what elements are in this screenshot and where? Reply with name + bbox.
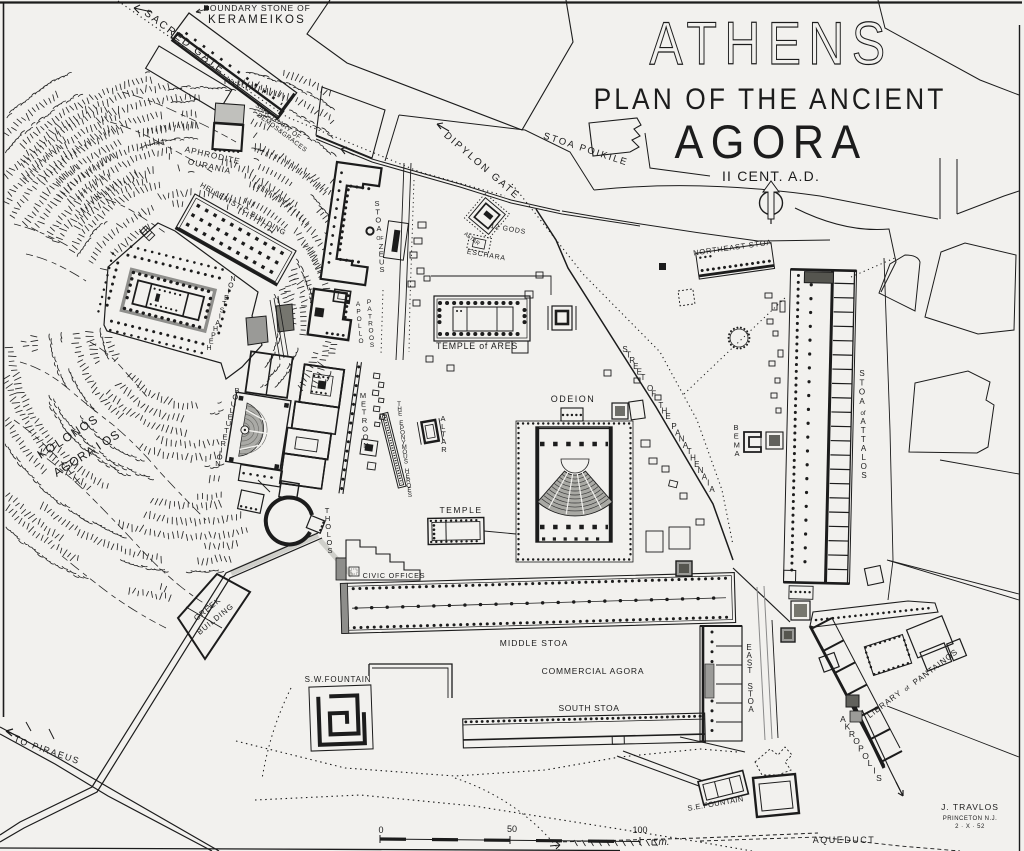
svg-text:2 · X · 52: 2 · X · 52 [955,824,985,830]
svg-text:0: 0 [378,825,383,835]
svg-text:T: T [222,301,227,308]
svg-text:100: 100 [632,825,647,835]
svg-text:II CENT. A.D.: II CENT. A.D. [722,168,820,184]
svg-text:P: P [367,299,371,306]
svg-text:T: T [747,666,752,675]
svg-text:T: T [860,378,865,387]
svg-text:I: I [228,289,230,296]
svg-text:L: L [861,453,866,462]
svg-text:E: E [398,411,402,418]
svg-text:50: 50 [507,824,517,834]
svg-text:I: I [219,314,221,321]
svg-text:E: E [209,339,214,346]
svg-text:S: S [861,471,866,480]
svg-text:A: A [860,417,866,426]
svg-text:O: O [368,328,373,335]
svg-text:PLAN OF THE ANCIENT: PLAN OF THE ANCIENT [594,81,947,115]
svg-text:A: A [734,449,739,458]
svg-text:S: S [859,369,864,378]
svg-text:J. TRAVLOS: J. TRAVLOS [941,802,999,812]
svg-text:L: L [358,323,362,330]
svg-text:E: E [665,412,670,421]
svg-text:S: S [876,773,882,783]
svg-text:T: T [640,373,645,382]
svg-text:S.W.FOUNTAIN: S.W.FOUNTAIN [305,675,372,684]
svg-text:A: A [709,485,715,494]
svg-text:S: S [220,307,225,314]
svg-text:S: S [404,459,408,466]
svg-text:A: A [859,397,865,406]
svg-text:SOUTH STOA: SOUTH STOA [558,703,619,713]
svg-text:A: A [861,444,867,453]
svg-text:N: N [215,459,220,468]
svg-text:B: B [733,423,738,432]
svg-text:N: N [230,276,235,283]
svg-text:A: A [356,301,361,308]
svg-text:TEMPLE: TEMPLE [439,505,482,515]
svg-text:N: N [363,441,368,450]
svg-text:PRINCETON N.J.: PRINCETON N.J. [943,816,998,822]
svg-text:A: A [376,224,381,233]
svg-text:F: F [651,390,656,399]
svg-text:TEMPLE of ARES: TEMPLE of ARES [436,341,518,351]
svg-text:L: L [868,758,873,768]
svg-text:m.: m. [658,837,669,848]
svg-text:KERAMEIKOS: KERAMEIKOS [208,14,306,26]
svg-text:AGORA: AGORA [675,115,868,168]
svg-text:R: R [441,445,447,454]
svg-text:O: O [228,282,234,289]
svg-text:L: L [359,331,363,338]
svg-text:COMMERCIAL AGORA: COMMERCIAL AGORA [542,666,645,676]
svg-text:P: P [211,333,216,340]
svg-text:O: O [369,335,374,342]
svg-text:ODEION: ODEION [551,394,596,404]
svg-text:H: H [213,326,218,333]
svg-text:A: A [748,705,754,714]
svg-text:MIDDLE STOA: MIDDLE STOA [500,638,568,648]
svg-text:S: S [379,265,384,274]
svg-text:T: T [861,426,866,435]
svg-text:CIVIC OFFICES: CIVIC OFFICES [363,571,426,580]
svg-text:R: R [368,321,373,328]
svg-text:BOUNDARY STONE OF: BOUNDARY STONE OF [203,3,310,13]
svg-text:ATHENS: ATHENS [649,10,892,77]
svg-text:T: T [861,435,866,444]
svg-text:O: O [859,388,865,397]
svg-text:S: S [370,342,375,349]
svg-text:O: O [358,338,363,345]
svg-text:P: P [356,308,360,315]
svg-text:S: S [408,492,412,499]
svg-text:O: O [357,316,362,323]
svg-text:A: A [367,306,372,313]
svg-text:S: S [327,546,332,555]
svg-text:O: O [861,462,867,471]
svg-text:E: E [224,295,229,302]
svg-text:H: H [206,345,211,352]
svg-text:T: T [368,313,372,320]
svg-text:AQUEDUCT: AQUEDUCT [813,835,876,845]
svg-text:M: M [734,440,740,449]
svg-text:A: A [215,320,220,327]
